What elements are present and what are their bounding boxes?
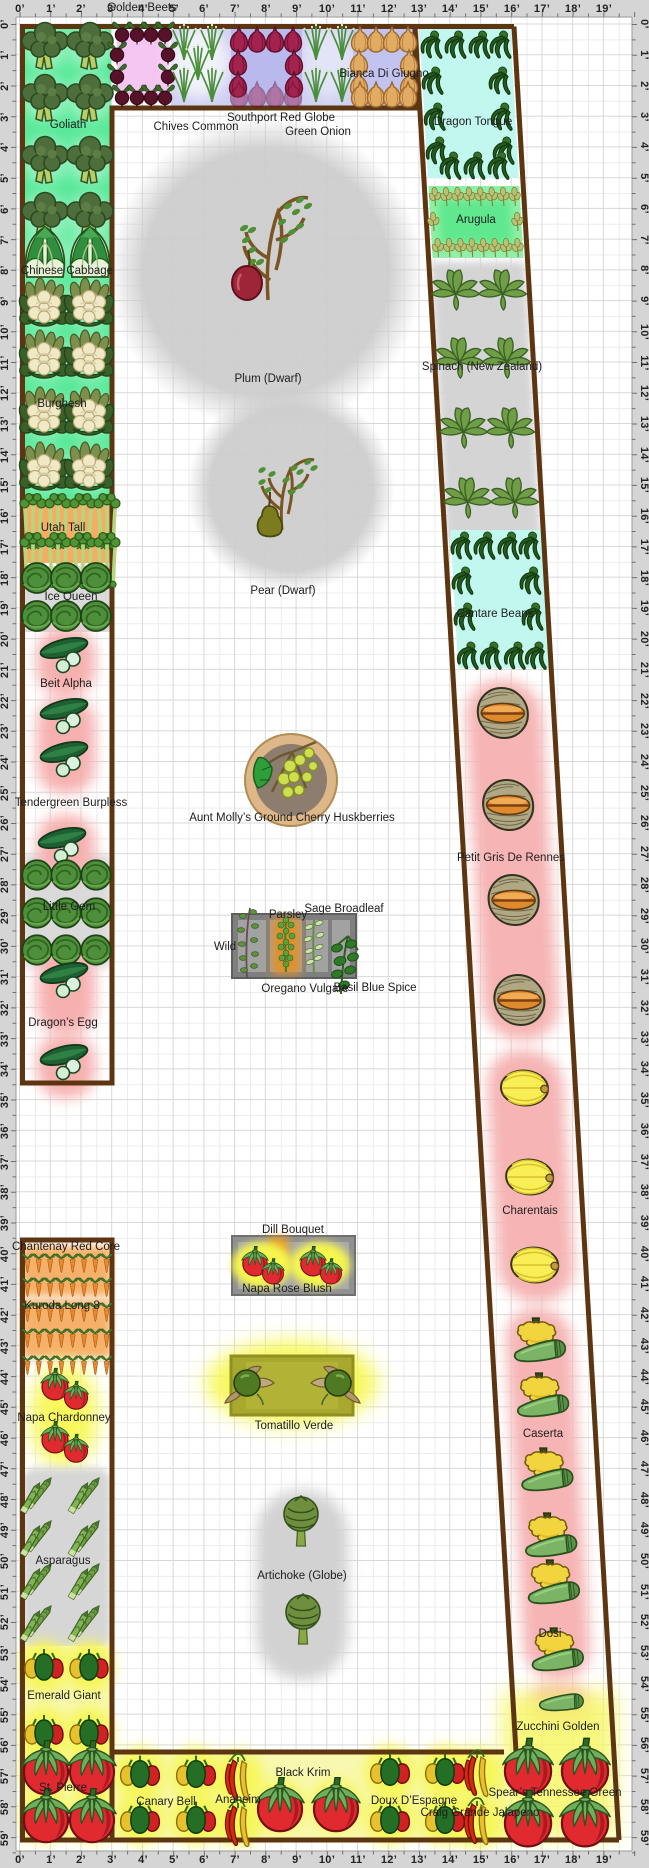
svg-text:42’: 42’ xyxy=(0,1307,11,1323)
svg-text:33’: 33’ xyxy=(0,1031,11,1047)
svg-text:11’: 11’ xyxy=(350,1854,366,1866)
svg-text:Anaheim: Anaheim xyxy=(215,1794,260,1806)
svg-text:10’: 10’ xyxy=(0,324,11,340)
svg-text:Green Onion: Green Onion xyxy=(285,126,351,138)
svg-text:37’: 37’ xyxy=(0,1154,11,1170)
svg-text:12’: 12’ xyxy=(0,385,11,401)
svg-text:Parsley: Parsley xyxy=(269,909,308,921)
svg-text:32’: 32’ xyxy=(638,1000,649,1016)
svg-text:Canary Bell: Canary Bell xyxy=(136,1796,195,1808)
svg-text:26’: 26’ xyxy=(0,815,11,831)
svg-text:23’: 23’ xyxy=(0,723,11,739)
svg-text:18’: 18’ xyxy=(565,3,581,15)
svg-text:27’: 27’ xyxy=(638,846,649,862)
svg-text:Chinese Cabbage: Chinese Cabbage xyxy=(21,265,113,277)
svg-text:37’: 37’ xyxy=(638,1154,649,1170)
svg-text:16’: 16’ xyxy=(504,3,520,15)
svg-text:51’: 51’ xyxy=(638,1584,649,1600)
svg-text:15’: 15’ xyxy=(638,477,649,493)
svg-text:14’: 14’ xyxy=(442,3,458,15)
svg-text:2’: 2’ xyxy=(76,3,86,15)
svg-text:Chives Common: Chives Common xyxy=(154,121,239,133)
svg-text:Dragon’s Egg: Dragon’s Egg xyxy=(28,1017,97,1029)
svg-text:34’: 34’ xyxy=(0,1061,11,1077)
svg-text:Doux D’Espagne: Doux D’Espagne xyxy=(371,1795,457,1807)
svg-text:50’: 50’ xyxy=(638,1553,649,1569)
svg-text:Dosi: Dosi xyxy=(538,1628,561,1640)
svg-text:Utah Tall: Utah Tall xyxy=(41,522,86,534)
svg-text:Charentais: Charentais xyxy=(502,1205,558,1217)
svg-text:3’: 3’ xyxy=(107,1854,117,1866)
svg-text:Beit Alpha: Beit Alpha xyxy=(40,678,92,690)
svg-text:Cantare Beans: Cantare Beans xyxy=(457,608,534,620)
svg-text:47’: 47’ xyxy=(0,1461,11,1477)
svg-text:6’: 6’ xyxy=(199,3,209,15)
svg-text:55’: 55’ xyxy=(0,1707,11,1723)
svg-text:40’: 40’ xyxy=(0,1246,11,1262)
svg-text:Craig Grande Jalapeno: Craig Grande Jalapeno xyxy=(421,1807,540,1819)
svg-text:41’: 41’ xyxy=(0,1276,11,1292)
svg-text:Spinach (New Zealand): Spinach (New Zealand) xyxy=(422,361,542,373)
svg-text:16’: 16’ xyxy=(504,1854,520,1866)
svg-text:Little Gem: Little Gem xyxy=(43,901,95,913)
svg-text:52’: 52’ xyxy=(0,1614,11,1630)
svg-text:19’: 19’ xyxy=(596,3,612,15)
svg-text:36’: 36’ xyxy=(0,1123,11,1139)
svg-text:Emerald Giant: Emerald Giant xyxy=(27,1690,101,1702)
svg-text:32’: 32’ xyxy=(0,1000,11,1016)
svg-text:57’: 57’ xyxy=(638,1768,649,1784)
svg-text:2’: 2’ xyxy=(76,1854,86,1866)
svg-text:46’: 46’ xyxy=(0,1430,11,1446)
svg-text:9’: 9’ xyxy=(0,296,11,306)
svg-text:14’: 14’ xyxy=(0,447,11,463)
svg-text:20’: 20’ xyxy=(0,631,11,647)
svg-text:35’: 35’ xyxy=(0,1092,11,1108)
svg-text:Zucchini Golden: Zucchini Golden xyxy=(516,1721,599,1733)
svg-text:0’: 0’ xyxy=(0,19,11,29)
svg-text:16’: 16’ xyxy=(638,508,649,524)
svg-text:31’: 31’ xyxy=(638,969,649,985)
svg-text:49’: 49’ xyxy=(0,1522,11,1538)
svg-text:1’: 1’ xyxy=(46,3,56,15)
svg-text:18’: 18’ xyxy=(638,570,649,586)
svg-text:17’: 17’ xyxy=(0,539,11,555)
svg-text:7’: 7’ xyxy=(638,235,649,245)
svg-text:43’: 43’ xyxy=(0,1338,11,1354)
svg-text:18’: 18’ xyxy=(0,570,11,586)
svg-text:Bianca Di Giugno: Bianca Di Giugno xyxy=(339,68,429,80)
svg-text:47’: 47’ xyxy=(638,1461,649,1477)
svg-text:39’: 39’ xyxy=(0,1215,11,1231)
svg-text:48’: 48’ xyxy=(638,1492,649,1508)
svg-text:8’: 8’ xyxy=(0,265,11,275)
svg-text:49’: 49’ xyxy=(638,1522,649,1538)
svg-text:22’: 22’ xyxy=(0,693,11,709)
svg-text:17’: 17’ xyxy=(638,539,649,555)
svg-text:6’: 6’ xyxy=(0,204,11,214)
svg-text:8’: 8’ xyxy=(638,265,649,275)
svg-text:18’: 18’ xyxy=(565,1854,581,1866)
svg-text:21’: 21’ xyxy=(638,662,649,678)
svg-text:7’: 7’ xyxy=(0,235,11,245)
svg-text:53’: 53’ xyxy=(638,1645,649,1661)
svg-text:24’: 24’ xyxy=(638,754,649,770)
svg-text:40’: 40’ xyxy=(638,1246,649,1262)
svg-text:St. Pierre: St. Pierre xyxy=(39,1782,87,1794)
svg-text:0’: 0’ xyxy=(15,3,25,15)
svg-text:29’: 29’ xyxy=(0,908,11,924)
svg-text:Plum (Dwarf): Plum (Dwarf) xyxy=(234,373,301,385)
svg-text:21’: 21’ xyxy=(0,662,11,678)
svg-text:0’: 0’ xyxy=(15,1854,25,1866)
svg-text:19’: 19’ xyxy=(638,600,649,616)
svg-text:9’: 9’ xyxy=(292,1854,302,1866)
svg-text:Dill Bouquet: Dill Bouquet xyxy=(262,1224,325,1236)
svg-text:36’: 36’ xyxy=(638,1123,649,1139)
svg-text:Arugula: Arugula xyxy=(456,214,496,226)
svg-text:9’: 9’ xyxy=(638,296,649,306)
svg-text:15’: 15’ xyxy=(473,3,489,15)
svg-text:53’: 53’ xyxy=(0,1645,11,1661)
svg-text:43’: 43’ xyxy=(638,1338,649,1354)
svg-text:30’: 30’ xyxy=(638,938,649,954)
svg-text:57’: 57’ xyxy=(0,1768,11,1784)
svg-text:1’: 1’ xyxy=(638,50,649,60)
svg-text:12’: 12’ xyxy=(381,1854,397,1866)
svg-text:Burghesh: Burghesh xyxy=(37,398,86,410)
svg-text:Asparagus: Asparagus xyxy=(36,1555,91,1567)
svg-text:56’: 56’ xyxy=(638,1737,649,1753)
svg-text:6’: 6’ xyxy=(638,204,649,214)
svg-text:Dragon Tongue: Dragon Tongue xyxy=(434,116,512,128)
svg-text:56’: 56’ xyxy=(0,1737,11,1753)
svg-text:1’: 1’ xyxy=(46,1854,56,1866)
svg-text:7’: 7’ xyxy=(230,3,240,15)
svg-text:12’: 12’ xyxy=(381,3,397,15)
svg-text:5’: 5’ xyxy=(169,1854,179,1866)
svg-text:44’: 44’ xyxy=(638,1369,649,1385)
svg-text:2’: 2’ xyxy=(638,81,649,91)
svg-text:Sage Broadleaf: Sage Broadleaf xyxy=(304,903,384,915)
svg-text:Southport Red Globe: Southport Red Globe xyxy=(227,112,335,124)
svg-text:51’: 51’ xyxy=(0,1584,11,1600)
svg-text:Kuroda Long 8: Kuroda Long 8 xyxy=(24,1300,99,1312)
svg-text:45’: 45’ xyxy=(0,1399,11,1415)
svg-text:19’: 19’ xyxy=(596,1854,612,1866)
svg-text:6’: 6’ xyxy=(199,1854,209,1866)
svg-text:38’: 38’ xyxy=(638,1184,649,1200)
svg-text:44’: 44’ xyxy=(0,1369,11,1385)
svg-text:59’: 59’ xyxy=(638,1830,649,1846)
svg-text:Tomatillo Verde: Tomatillo Verde xyxy=(255,1420,334,1432)
svg-text:14’: 14’ xyxy=(442,1854,458,1866)
svg-text:17’: 17’ xyxy=(534,3,550,15)
svg-text:Aunt Molly’s Ground Cherry Hus: Aunt Molly’s Ground Cherry Huskberries xyxy=(189,812,395,824)
svg-text:10’: 10’ xyxy=(319,1854,335,1866)
svg-text:24’: 24’ xyxy=(0,754,11,770)
svg-text:13’: 13’ xyxy=(411,3,427,15)
svg-text:13’: 13’ xyxy=(0,416,11,432)
svg-text:42’: 42’ xyxy=(638,1307,649,1323)
svg-text:Artichoke (Globe): Artichoke (Globe) xyxy=(257,1570,347,1582)
svg-text:16’: 16’ xyxy=(0,508,11,524)
svg-text:2’: 2’ xyxy=(0,81,11,91)
svg-text:17’: 17’ xyxy=(534,1854,550,1866)
svg-text:28’: 28’ xyxy=(638,877,649,893)
svg-text:38’: 38’ xyxy=(0,1184,11,1200)
svg-text:33’: 33’ xyxy=(638,1031,649,1047)
svg-text:Tendergreen Burpless: Tendergreen Burpless xyxy=(15,797,128,809)
svg-text:3’: 3’ xyxy=(0,112,11,122)
svg-text:Ice Queen: Ice Queen xyxy=(44,591,97,603)
svg-text:Caserta: Caserta xyxy=(523,1428,564,1440)
svg-text:8’: 8’ xyxy=(261,3,271,15)
svg-text:5’: 5’ xyxy=(0,173,11,183)
svg-text:45’: 45’ xyxy=(638,1399,649,1415)
svg-text:54’: 54’ xyxy=(638,1676,649,1692)
svg-text:46’: 46’ xyxy=(638,1430,649,1446)
svg-text:25’: 25’ xyxy=(638,785,649,801)
svg-text:1’: 1’ xyxy=(0,50,11,60)
svg-text:28’: 28’ xyxy=(0,877,11,893)
svg-text:Pear (Dwarf): Pear (Dwarf) xyxy=(250,585,315,597)
svg-text:4’: 4’ xyxy=(638,142,649,152)
svg-text:Chantenay Red Core: Chantenay Red Core xyxy=(12,1241,120,1253)
svg-text:10’: 10’ xyxy=(319,3,335,15)
svg-text:Napa Chardonney: Napa Chardonney xyxy=(17,1412,111,1424)
svg-text:11’: 11’ xyxy=(350,3,366,15)
svg-text:Napa Rose Blush: Napa Rose Blush xyxy=(242,1283,332,1295)
svg-text:34’: 34’ xyxy=(638,1061,649,1077)
svg-text:26’: 26’ xyxy=(638,815,649,831)
svg-text:10’: 10’ xyxy=(638,324,649,340)
svg-text:22’: 22’ xyxy=(638,693,649,709)
svg-text:19’: 19’ xyxy=(0,600,11,616)
svg-text:11’: 11’ xyxy=(0,355,11,371)
svg-text:13’: 13’ xyxy=(638,416,649,432)
svg-text:31’: 31’ xyxy=(0,969,11,985)
svg-text:41’: 41’ xyxy=(638,1276,649,1292)
svg-text:11’: 11’ xyxy=(638,355,649,371)
svg-text:Golden Beets: Golden Beets xyxy=(107,2,177,14)
svg-text:54’: 54’ xyxy=(0,1676,11,1692)
svg-text:59’: 59’ xyxy=(0,1830,11,1846)
svg-text:55’: 55’ xyxy=(638,1707,649,1723)
svg-text:14’: 14’ xyxy=(638,447,649,463)
svg-text:39’: 39’ xyxy=(638,1215,649,1231)
svg-text:9’: 9’ xyxy=(292,3,302,15)
svg-text:Spear’s Tennessee Green: Spear’s Tennessee Green xyxy=(489,1787,622,1799)
svg-text:0’: 0’ xyxy=(638,19,649,29)
svg-text:7’: 7’ xyxy=(230,1854,240,1866)
svg-text:5’: 5’ xyxy=(638,173,649,183)
svg-text:15’: 15’ xyxy=(473,1854,489,1866)
svg-text:Petit Gris De Rennes: Petit Gris De Rennes xyxy=(457,852,565,864)
svg-text:35’: 35’ xyxy=(638,1092,649,1108)
svg-text:20’: 20’ xyxy=(638,631,649,647)
svg-text:27’: 27’ xyxy=(0,846,11,862)
svg-text:12’: 12’ xyxy=(638,385,649,401)
svg-text:Goliath: Goliath xyxy=(50,119,86,131)
svg-text:3’: 3’ xyxy=(638,112,649,122)
svg-text:8’: 8’ xyxy=(261,1854,271,1866)
svg-text:15’: 15’ xyxy=(0,477,11,493)
svg-text:30’: 30’ xyxy=(0,938,11,954)
svg-text:29’: 29’ xyxy=(638,908,649,924)
svg-text:Wild: Wild xyxy=(214,941,236,953)
svg-text:4’: 4’ xyxy=(138,1854,148,1866)
svg-text:Black Krim: Black Krim xyxy=(276,1767,331,1779)
svg-text:52’: 52’ xyxy=(638,1614,649,1630)
svg-text:23’: 23’ xyxy=(638,723,649,739)
svg-text:58’: 58’ xyxy=(0,1799,11,1815)
svg-text:25’: 25’ xyxy=(0,785,11,801)
svg-text:4’: 4’ xyxy=(0,142,11,152)
svg-text:58’: 58’ xyxy=(638,1799,649,1815)
svg-text:48’: 48’ xyxy=(0,1492,11,1508)
svg-text:Basil Blue Spice: Basil Blue Spice xyxy=(333,982,416,994)
svg-text:13’: 13’ xyxy=(411,1854,427,1866)
svg-text:50’: 50’ xyxy=(0,1553,11,1569)
